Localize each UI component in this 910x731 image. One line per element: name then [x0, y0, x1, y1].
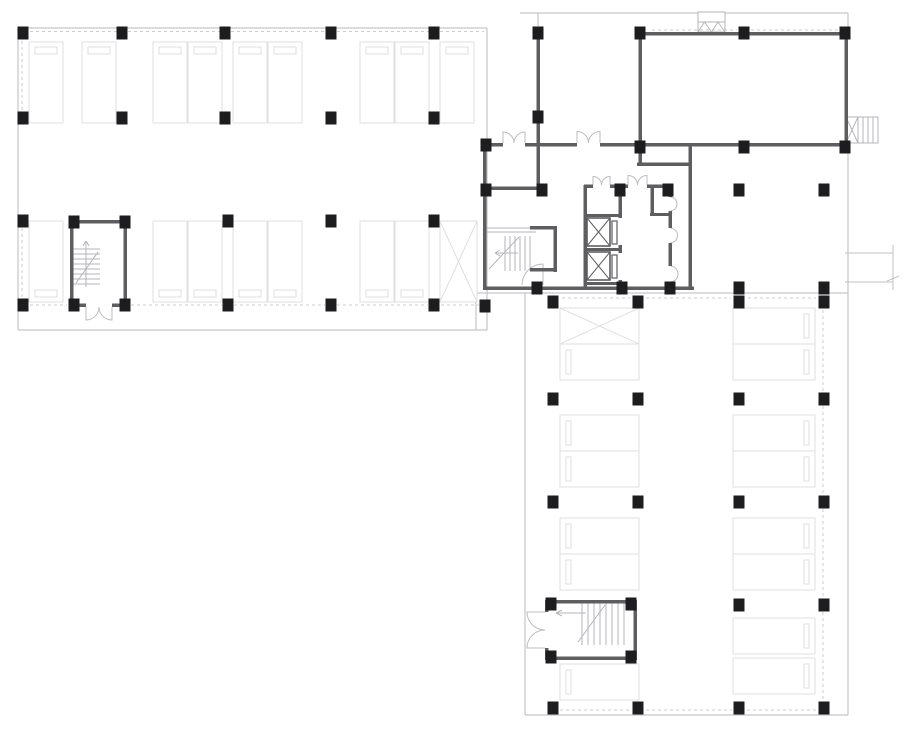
- wall-segment: [689, 146, 693, 290]
- structural-column: [481, 184, 492, 197]
- wall-segment: [537, 30, 541, 190]
- wheel-stop: [804, 624, 809, 648]
- wheel-stop: [35, 290, 57, 297]
- structural-column: [532, 282, 543, 295]
- floor-plan-canvas: [0, 0, 910, 731]
- structural-column: [120, 299, 131, 312]
- wheel-stop: [804, 560, 809, 584]
- wheel-stop: [446, 47, 468, 54]
- structural-column: [840, 141, 851, 154]
- wheel-stop: [239, 290, 261, 297]
- parking-stall: [560, 344, 639, 380]
- structural-column: [734, 599, 745, 612]
- elevator-door: [612, 255, 617, 278]
- structural-column: [18, 215, 29, 228]
- wheel-stop: [804, 524, 809, 548]
- elevator-door: [612, 221, 617, 244]
- structural-column: [548, 702, 559, 715]
- structural-column: [635, 141, 646, 154]
- structural-column: [548, 393, 559, 406]
- wheel-stop: [566, 560, 571, 584]
- wheel-stop: [35, 47, 57, 54]
- structural-column: [615, 184, 626, 197]
- parking-stall: [560, 554, 639, 590]
- structural-column: [533, 27, 544, 40]
- wheel-stop: [804, 421, 809, 445]
- wheel-stop: [401, 47, 423, 54]
- parking-stall: [560, 415, 639, 451]
- structural-column: [481, 139, 492, 152]
- structural-column: [734, 184, 745, 197]
- wheel-stop: [274, 47, 296, 54]
- structural-column: [819, 393, 830, 406]
- structural-column: [734, 496, 745, 509]
- wheel-stop: [239, 47, 261, 54]
- parking-stall: [733, 618, 815, 654]
- structural-column: [546, 598, 557, 611]
- structural-column: [220, 27, 231, 40]
- wheel-stop: [366, 290, 388, 297]
- wheel-stop: [274, 290, 296, 297]
- structural-column: [734, 393, 745, 406]
- wall-segment: [70, 220, 74, 307]
- structural-column: [633, 296, 644, 309]
- wall-segment: [483, 143, 487, 290]
- wheel-stop: [366, 47, 388, 54]
- structural-column: [819, 184, 830, 197]
- structural-column: [326, 215, 337, 228]
- parking-stall: [560, 664, 639, 700]
- structural-column: [819, 296, 830, 309]
- wall-segment: [525, 143, 577, 147]
- structural-column: [734, 296, 745, 309]
- structural-column: [223, 299, 234, 312]
- wheel-stop: [804, 664, 809, 688]
- wall-segment: [637, 163, 692, 167]
- wall-segment: [530, 268, 557, 272]
- parking-stall: [733, 518, 815, 554]
- structural-column: [840, 27, 851, 40]
- structural-column: [665, 282, 676, 295]
- wall-segment: [124, 220, 128, 307]
- structural-column: [548, 496, 559, 509]
- wall-segment: [530, 226, 557, 230]
- structural-column: [429, 27, 440, 40]
- parking-stall: [733, 344, 815, 380]
- structural-column: [537, 184, 548, 197]
- structural-column: [326, 112, 337, 125]
- wall-segment: [600, 143, 640, 147]
- wall-segment: [845, 32, 849, 146]
- structural-column: [617, 282, 628, 295]
- structural-column: [429, 112, 440, 125]
- structural-column: [739, 141, 750, 154]
- wall-segment: [584, 248, 620, 251]
- structural-column: [117, 112, 128, 125]
- structural-column: [546, 651, 557, 664]
- structural-column: [819, 702, 830, 715]
- structural-column: [69, 216, 80, 229]
- structural-column: [819, 496, 830, 509]
- wheel-stop: [804, 350, 809, 374]
- wall-segment: [545, 657, 637, 661]
- structural-column: [819, 282, 830, 295]
- structural-column: [633, 393, 644, 406]
- wheel-stop: [401, 290, 423, 297]
- parking-stall: [733, 415, 815, 451]
- structural-column: [663, 184, 674, 197]
- structural-column: [18, 27, 29, 40]
- structural-column: [117, 27, 128, 40]
- wall-segment: [669, 211, 673, 228]
- wheel-stop: [194, 290, 216, 297]
- wall-segment: [483, 187, 545, 191]
- wheel-stop: [804, 314, 809, 338]
- structural-column: [120, 216, 131, 229]
- structural-column: [429, 299, 440, 312]
- wall-segment: [554, 226, 558, 272]
- structural-column: [480, 300, 491, 313]
- parking-stall: [733, 658, 815, 694]
- structural-column: [220, 112, 231, 125]
- parking-stall: [733, 308, 815, 344]
- floor-plan-page: { "canvas": {"w": 910, "h": 731, "bg": "…: [0, 0, 910, 731]
- structural-column: [734, 702, 745, 715]
- wheel-stop: [566, 350, 571, 374]
- structural-column: [18, 112, 29, 125]
- wheel-stop: [566, 524, 571, 548]
- structural-column: [633, 702, 644, 715]
- structural-column: [18, 299, 29, 312]
- wall-segment: [669, 243, 673, 266]
- structural-column: [626, 651, 637, 664]
- wheel-stop: [194, 47, 216, 54]
- structural-column: [739, 27, 750, 40]
- structural-column: [223, 215, 234, 228]
- structural-column: [69, 299, 80, 312]
- structural-column: [548, 296, 559, 309]
- structural-column: [326, 27, 337, 40]
- wheel-stop: [566, 670, 571, 694]
- wall-segment: [483, 287, 694, 291]
- parking-stall: [733, 451, 815, 487]
- structural-column: [633, 496, 644, 509]
- wheel-stop: [159, 290, 181, 297]
- structural-column: [429, 215, 440, 228]
- wall-segment: [650, 213, 670, 216]
- parking-stall: [560, 451, 639, 487]
- structural-column: [734, 282, 745, 295]
- structural-column: [635, 27, 646, 40]
- wall-segment: [545, 600, 637, 604]
- wall-segment: [584, 214, 620, 217]
- wall-segment: [651, 185, 655, 216]
- parking-stall: [560, 518, 639, 554]
- structural-column: [626, 598, 637, 611]
- wheel-stop: [88, 47, 110, 54]
- wheel-stop: [159, 47, 181, 54]
- wheel-stop: [804, 457, 809, 481]
- wheel-stop: [566, 457, 571, 481]
- parking-stall: [733, 554, 815, 590]
- wall-segment: [584, 282, 620, 285]
- structural-column: [326, 299, 337, 312]
- wheel-stop: [566, 421, 571, 445]
- structural-column: [533, 111, 544, 124]
- structural-column: [819, 599, 830, 612]
- floor-plan: [0, 0, 910, 731]
